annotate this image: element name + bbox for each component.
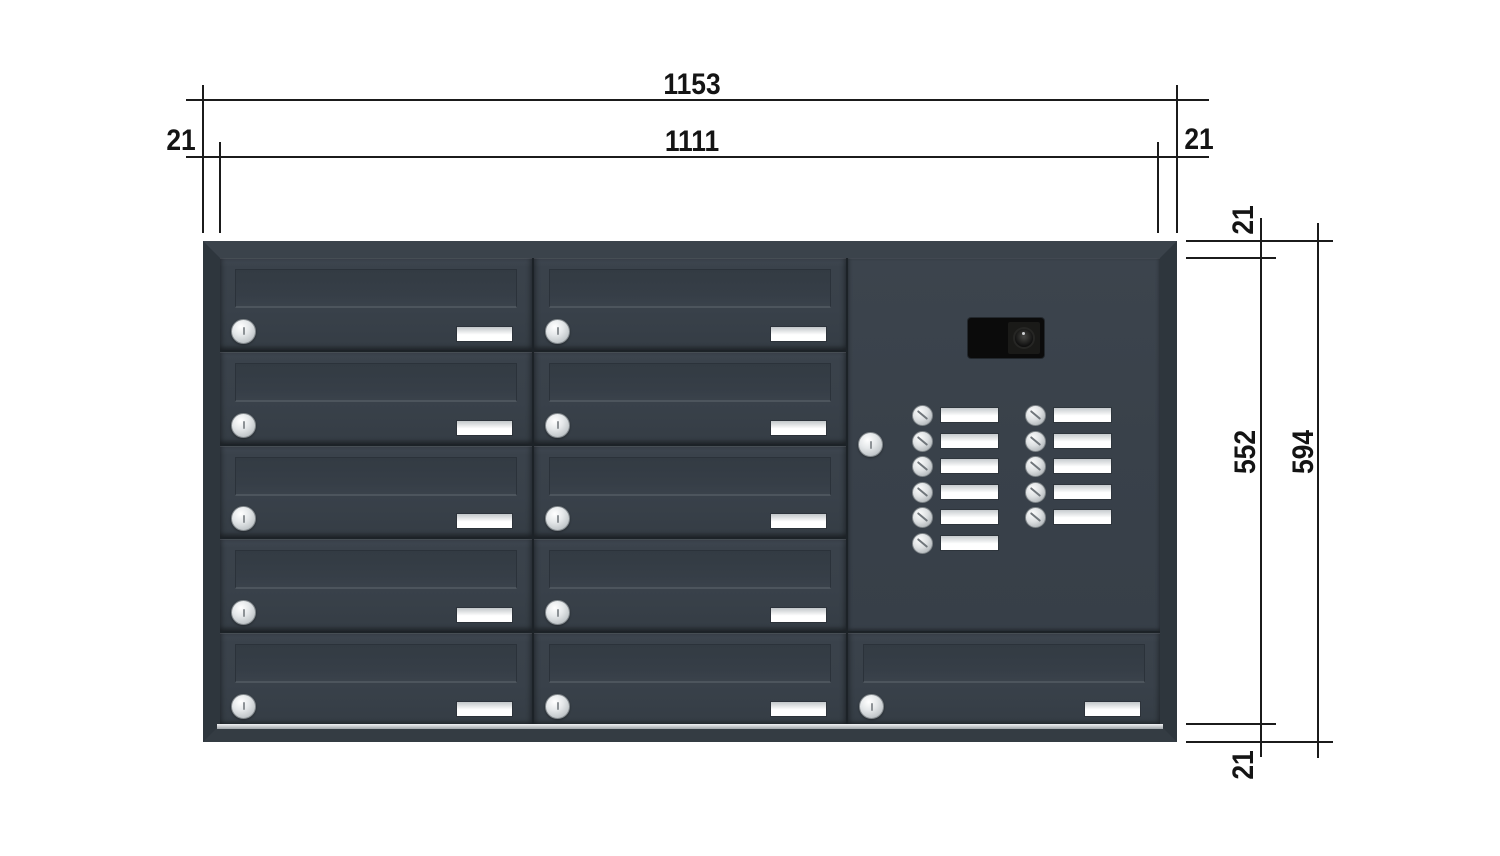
mailbox-door <box>220 633 532 725</box>
dim-label-top-margin-right: 21 <box>1184 125 1213 155</box>
doorbell-row <box>912 405 998 425</box>
letter-flap <box>235 550 517 589</box>
name-plate <box>457 514 512 528</box>
letter-flap <box>235 363 517 402</box>
bell-button-icon <box>1025 507 1046 528</box>
name-plate <box>1054 485 1111 499</box>
dim-label-top-margin-left: 21 <box>166 126 195 156</box>
lock-icon <box>545 319 570 344</box>
lock-icon <box>231 413 256 438</box>
letter-flap <box>863 644 1145 683</box>
bell-button-icon <box>1025 431 1046 452</box>
mailbox-door <box>220 258 532 350</box>
doorbell-row <box>1025 456 1111 476</box>
left-mailbox-column <box>220 258 532 725</box>
name-plate <box>771 421 826 435</box>
lock-icon <box>231 506 256 531</box>
lock-icon <box>231 694 256 719</box>
lock-icon <box>231 319 256 344</box>
middle-mailbox-column <box>534 258 846 725</box>
base-trim <box>217 724 1163 729</box>
letter-flap <box>235 457 517 496</box>
lock-icon <box>545 413 570 438</box>
mailbox-door <box>220 539 532 631</box>
name-plate <box>1054 459 1111 473</box>
panel-lock-icon <box>858 432 883 457</box>
dim-label-top-outer-width: 1153 <box>663 70 720 100</box>
dim-label-side-margin-top: 21 <box>1229 205 1259 234</box>
letter-flap <box>235 644 517 683</box>
mailbox-door <box>534 539 846 631</box>
name-plate <box>1054 434 1111 448</box>
bell-button-icon <box>912 533 933 554</box>
doorbell-row <box>912 431 998 451</box>
name-plate <box>771 327 826 341</box>
letter-flap <box>549 363 831 402</box>
mailbox-door <box>534 352 846 444</box>
mailbox-technical-drawing: 1153 1111 21 21 21 552 594 21 <box>0 0 1500 856</box>
doorbell-row <box>912 507 998 527</box>
camera-window <box>1008 322 1040 354</box>
letter-flap <box>549 550 831 589</box>
doorbell-row <box>1025 405 1111 425</box>
name-plate <box>771 608 826 622</box>
bell-button-icon <box>1025 405 1046 426</box>
lock-icon <box>859 694 884 719</box>
letter-flap <box>549 269 831 308</box>
name-plate <box>941 510 998 524</box>
name-plate <box>1054 510 1111 524</box>
lock-icon <box>545 600 570 625</box>
name-plate <box>457 702 512 716</box>
name-plate <box>457 608 512 622</box>
mailbox-door <box>220 446 532 538</box>
mailbox-cabinet <box>203 241 1177 742</box>
doorbell-row <box>912 456 998 476</box>
mailbox-door <box>534 258 846 350</box>
name-plate <box>941 408 998 422</box>
doorbell-row <box>1025 482 1111 502</box>
bell-button-icon <box>1025 456 1046 477</box>
camera-lens-icon <box>1015 329 1033 347</box>
name-plate <box>1085 702 1140 716</box>
letter-flap <box>549 644 831 683</box>
lock-icon <box>545 506 570 531</box>
intercom-panel <box>848 258 1160 631</box>
doorbell-row <box>1025 507 1111 527</box>
name-plate <box>771 702 826 716</box>
name-plate <box>941 536 998 550</box>
camera-module <box>968 318 1044 358</box>
name-plate <box>941 459 998 473</box>
bell-button-icon <box>912 431 933 452</box>
bell-button-icon <box>912 405 933 426</box>
bell-button-icon <box>912 482 933 503</box>
bell-button-icon <box>912 507 933 528</box>
letter-flap <box>549 457 831 496</box>
name-plate <box>771 514 826 528</box>
cabinet-inner <box>220 258 1160 725</box>
bell-button-icon <box>1025 482 1046 503</box>
name-plate <box>457 421 512 435</box>
doorbell-row <box>912 533 998 553</box>
mailbox-door <box>848 633 1160 725</box>
name-plate <box>941 434 998 448</box>
letter-flap <box>235 269 517 308</box>
doorbell-row <box>912 482 998 502</box>
name-plate <box>1054 408 1111 422</box>
dim-label-side-outer-height: 594 <box>1289 430 1319 474</box>
dim-label-side-inner-height: 552 <box>1231 430 1261 474</box>
lock-icon <box>545 694 570 719</box>
dim-label-side-margin-bottom: 21 <box>1229 750 1259 779</box>
doorbell-row <box>1025 431 1111 451</box>
lock-icon <box>231 600 256 625</box>
dim-label-top-inner-width: 1111 <box>665 127 719 157</box>
name-plate <box>457 327 512 341</box>
mailbox-door <box>534 633 846 725</box>
mailbox-door <box>534 446 846 538</box>
right-column <box>848 258 1160 725</box>
name-plate <box>941 485 998 499</box>
bell-button-icon <box>912 456 933 477</box>
mailbox-door <box>220 352 532 444</box>
